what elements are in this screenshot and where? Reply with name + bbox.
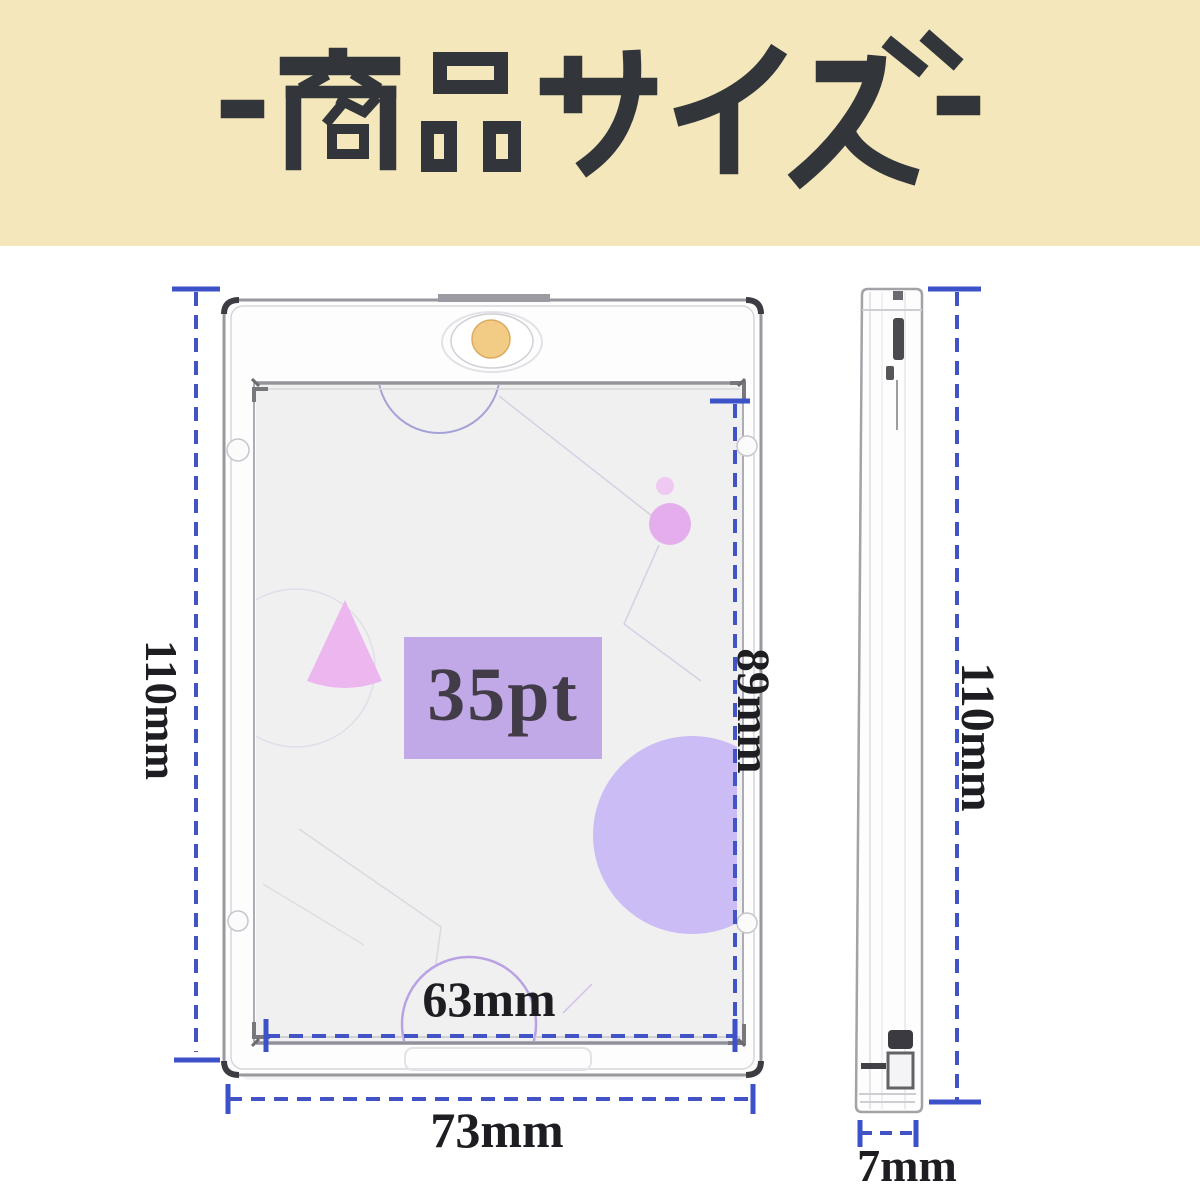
svg-text:89mm: 89mm xyxy=(727,648,779,773)
svg-text:63mm: 63mm xyxy=(422,971,555,1027)
svg-text:110mm: 110mm xyxy=(951,662,1004,811)
svg-text:110mm: 110mm xyxy=(136,640,186,780)
svg-text:73mm: 73mm xyxy=(430,1102,563,1158)
svg-text:35pt: 35pt xyxy=(427,653,579,737)
svg-text:7mm: 7mm xyxy=(857,1140,957,1191)
